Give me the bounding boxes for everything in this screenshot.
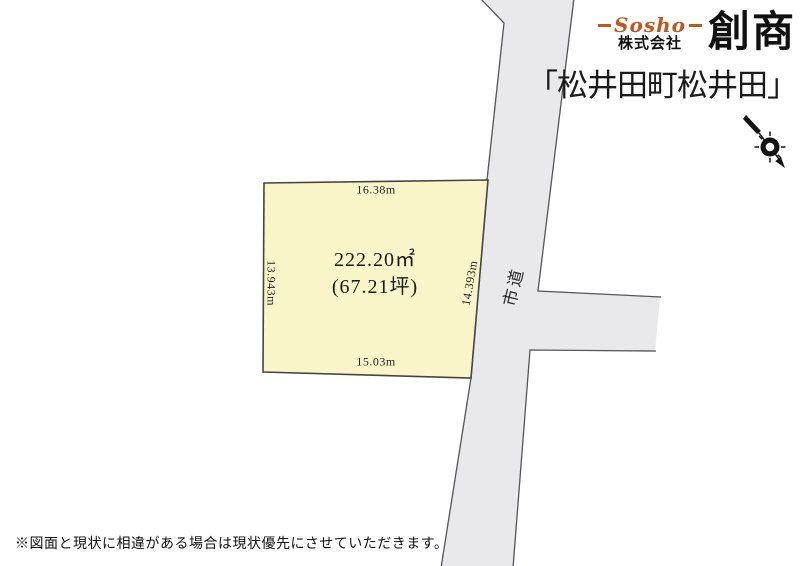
company-name: 創商 (708, 12, 796, 52)
road-right-edge-lower (513, 350, 656, 566)
area-sqm: 222.20㎡ (332, 247, 418, 274)
parcel-area-label: 222.20㎡ (67.21坪) (332, 247, 418, 301)
page-title: 「松井田町松井田」 (527, 60, 797, 105)
company-prefix: 株式会社 (618, 36, 682, 52)
company-logo: Sosho 株式会社 創商 (595, 12, 796, 52)
land-plot-flyer: Sosho 株式会社 創商 「松井田町松井田」 16.38m 13.943m 1… (0, 0, 800, 566)
logo-flourish-right (689, 24, 702, 27)
area-tsubo: (67.21坪) (332, 274, 418, 301)
disclaimer-note: ※図面と現状に相違がある場合は現状優先にさせていただきます。 (15, 533, 448, 553)
logo-script-row: Sosho (595, 15, 705, 35)
dimension-top: 16.38m (356, 183, 395, 198)
logo-flourish-left (598, 24, 611, 27)
compass-icon (743, 115, 786, 168)
dimension-bottom: 15.03m (356, 355, 395, 370)
logo-left-column: Sosho 株式会社 (595, 15, 705, 52)
dimension-left: 13.943m (264, 260, 279, 306)
logo-script-text: Sosho (614, 15, 686, 35)
